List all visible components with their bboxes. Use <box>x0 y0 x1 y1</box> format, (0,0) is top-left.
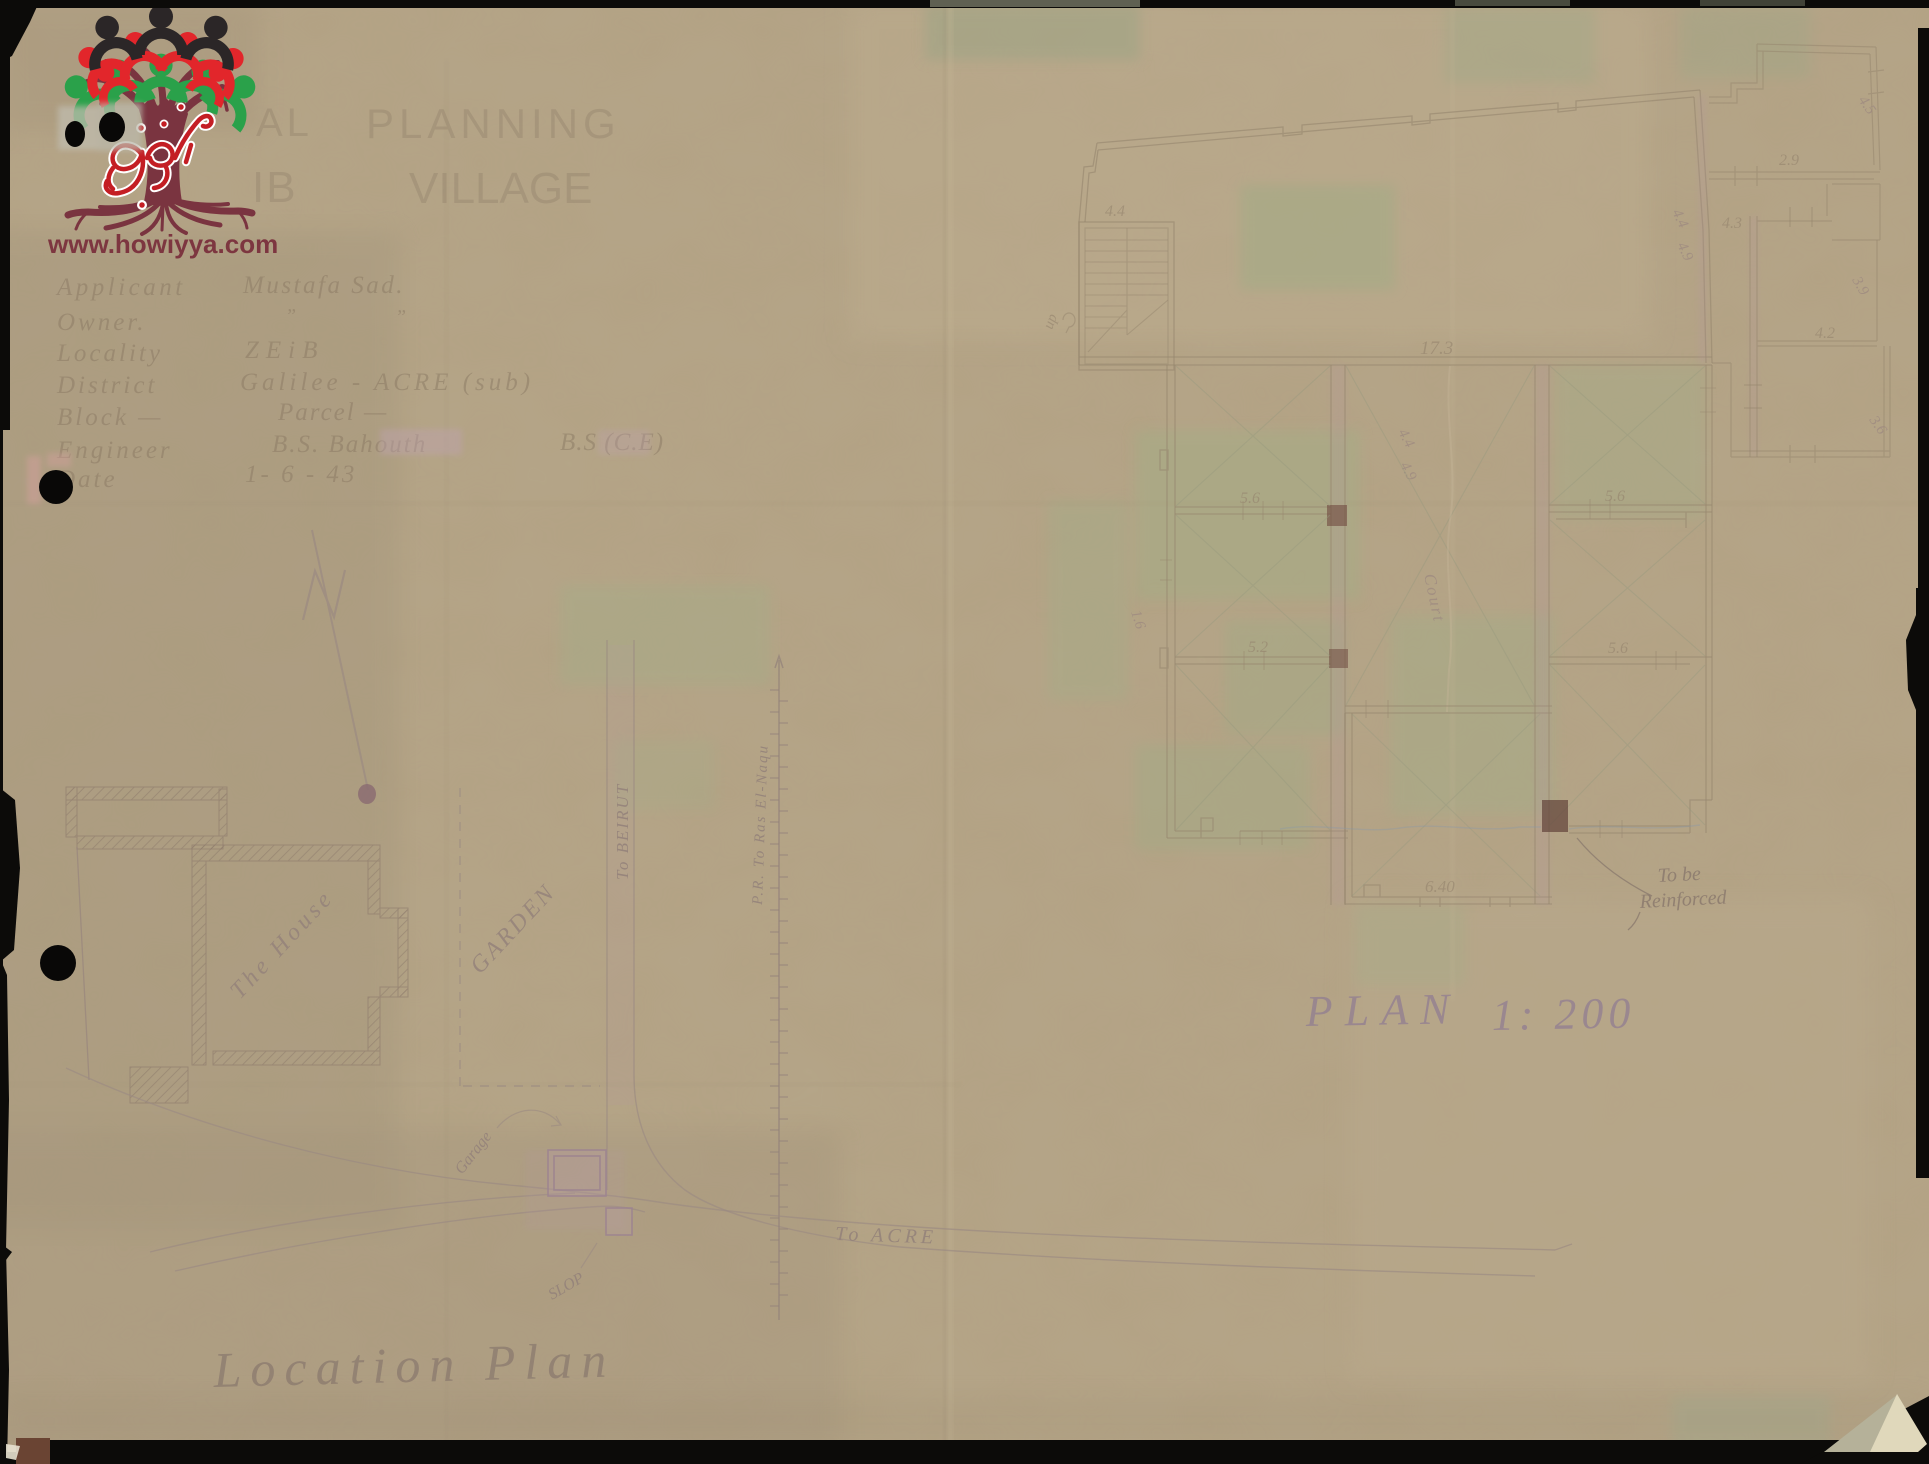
svg-text:17.3: 17.3 <box>1420 338 1453 359</box>
svg-text:5.6: 5.6 <box>1608 640 1628 657</box>
svg-text:1: 200: 1: 200 <box>1491 988 1635 1039</box>
svg-text:www.howiyya.com: www.howiyya.com <box>47 229 278 259</box>
svg-text:PLANNING: PLANNING <box>366 100 621 147</box>
svg-text:5.2: 5.2 <box>1248 639 1268 656</box>
svg-text:Owner.: Owner. <box>57 309 147 336</box>
svg-text:Locality: Locality <box>56 340 163 367</box>
svg-text:5.6: 5.6 <box>1605 488 1625 505</box>
svg-text:Parcel —: Parcel — <box>277 399 388 426</box>
svg-text:IB: IB <box>252 163 298 212</box>
svg-text:Galilee - ACRE (sub): Galilee - ACRE (sub) <box>240 369 534 396</box>
svg-text:4.4: 4.4 <box>1105 203 1125 220</box>
svg-text:1- 6 - 43: 1- 6 - 43 <box>245 461 357 488</box>
svg-text:VILLAGE: VILLAGE <box>409 164 592 213</box>
svg-text:To be: To be <box>1657 863 1701 887</box>
svg-text:To BEIRUT: To BEIRUT <box>613 783 632 880</box>
svg-text:4.2: 4.2 <box>1815 325 1835 342</box>
svg-text:Engineer: Engineer <box>56 437 173 464</box>
svg-text:4.3: 4.3 <box>1722 215 1742 232</box>
svg-text:Applicant: Applicant <box>55 274 186 301</box>
svg-text:”: ” <box>395 306 406 328</box>
svg-text:6.40: 6.40 <box>1425 877 1455 896</box>
svg-text:Block —: Block — <box>57 404 163 431</box>
svg-text:Location Plan: Location Plan <box>212 1331 616 1398</box>
svg-text:”: ” <box>285 305 296 327</box>
svg-text:Mustafa Sad.: Mustafa Sad. <box>242 272 405 299</box>
svg-text:District: District <box>56 372 157 399</box>
svg-text:AL: AL <box>256 101 313 145</box>
svg-text:PLAN: PLAN <box>1304 984 1461 1036</box>
svg-text:ZEiB: ZEiB <box>245 337 324 364</box>
svg-text:2.9: 2.9 <box>1779 152 1799 169</box>
svg-text:Reinforced: Reinforced <box>1638 886 1728 913</box>
svg-text:To ACRE: To ACRE <box>835 1223 938 1249</box>
